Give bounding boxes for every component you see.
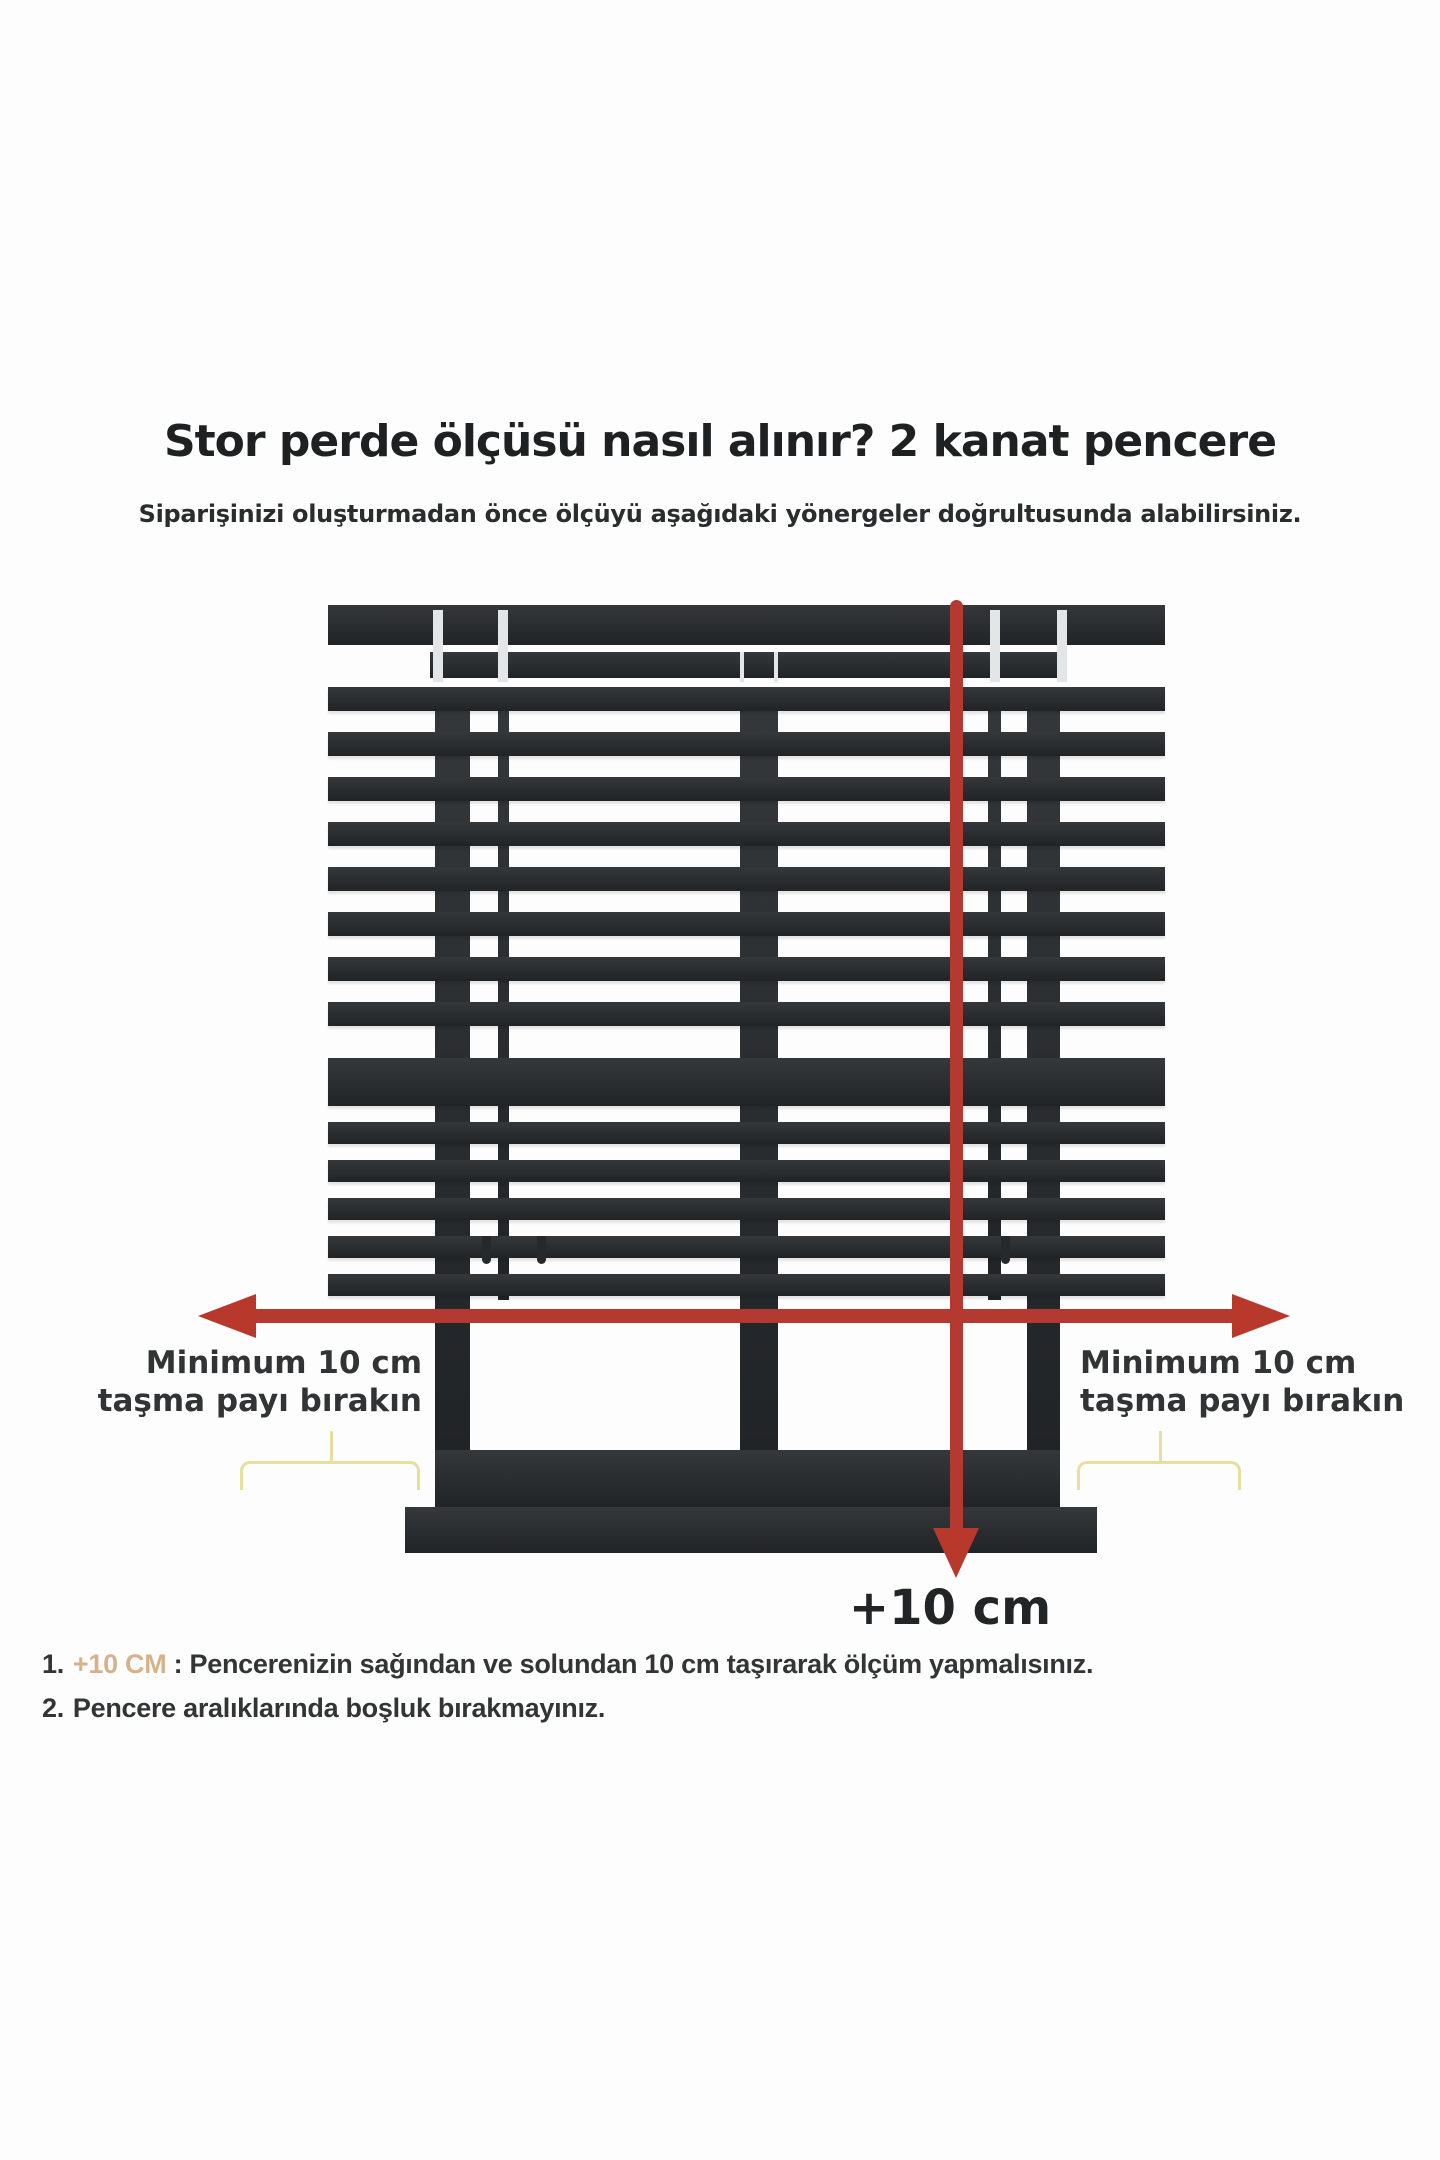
window-head-frame bbox=[430, 652, 1060, 678]
right-overhang-label: Minimum 10 cm taşma payı bırakın bbox=[1080, 1344, 1440, 1420]
frame-seam bbox=[774, 652, 778, 682]
blind-slat bbox=[328, 777, 1165, 801]
width-arrow-left-head-icon bbox=[198, 1294, 256, 1338]
instruction-2-number: 2. bbox=[42, 1693, 64, 1723]
frame-seam bbox=[433, 610, 443, 682]
left-overhang-line2: taşma payı bırakın bbox=[62, 1382, 422, 1420]
blind-cord-hook bbox=[482, 1236, 491, 1264]
blind-slat bbox=[328, 1160, 1165, 1182]
width-arrow-shaft bbox=[250, 1309, 1238, 1323]
page-subtitle: Siparişinizi oluşturmadan önce ölçüyü aş… bbox=[0, 500, 1440, 528]
right-overhang-line1: Minimum 10 cm bbox=[1080, 1344, 1440, 1382]
blind-slat bbox=[328, 687, 1165, 711]
blind-slat bbox=[328, 1274, 1165, 1296]
instruction-list: 1.+10 CM : Pencerenizin sağından ve solu… bbox=[42, 1642, 1422, 1730]
infographic-page: Stor perde ölçüsü nasıl alınır? 2 kanat … bbox=[0, 0, 1440, 2160]
window-sill bbox=[405, 1507, 1097, 1553]
instruction-2-text: Pencere aralıklarında boşluk bırakmayını… bbox=[73, 1693, 605, 1723]
height-measure-label: +10 cm bbox=[800, 1580, 1100, 1636]
instruction-1-text: : Pencerenizin sağından ve solundan 10 c… bbox=[166, 1649, 1093, 1679]
blind-slat bbox=[328, 1002, 1165, 1026]
frame-seam bbox=[990, 610, 1000, 682]
blind-slat bbox=[328, 1236, 1165, 1258]
blind-cord-hook bbox=[1001, 1236, 1010, 1264]
right-overhang-brace-icon bbox=[1077, 1461, 1241, 1490]
window-bottom-frame bbox=[435, 1450, 1060, 1507]
blind-slat-double bbox=[328, 1058, 1165, 1106]
right-overhang-line2: taşma payı bırakın bbox=[1080, 1382, 1440, 1420]
height-arrow-shaft bbox=[950, 600, 963, 1535]
left-overhang-line1: Minimum 10 cm bbox=[62, 1344, 422, 1382]
left-overhang-label: Minimum 10 cm taşma payı bırakın bbox=[62, 1344, 422, 1420]
width-arrow-right-head-icon bbox=[1232, 1294, 1290, 1338]
page-title: Stor perde ölçüsü nasıl alınır? 2 kanat … bbox=[0, 416, 1440, 467]
blind-valance bbox=[328, 605, 1165, 645]
frame-seam bbox=[1057, 610, 1067, 682]
blind-slat bbox=[328, 912, 1165, 936]
frame-seam bbox=[740, 652, 744, 682]
blind-slat bbox=[328, 1122, 1165, 1144]
blind-slat bbox=[328, 1198, 1165, 1220]
blind-cord-hook bbox=[537, 1236, 546, 1264]
instruction-1-number: 1. bbox=[42, 1649, 64, 1679]
blind-slat bbox=[328, 957, 1165, 981]
blind-slat bbox=[328, 732, 1165, 756]
blind-slat bbox=[328, 867, 1165, 891]
height-arrow-down-head-icon bbox=[933, 1528, 979, 1578]
frame-seam bbox=[498, 610, 508, 682]
instruction-1-highlight: +10 CM bbox=[73, 1649, 167, 1679]
blind-slat bbox=[328, 822, 1165, 846]
left-overhang-brace-icon bbox=[240, 1461, 420, 1490]
instruction-item-1: 1.+10 CM : Pencerenizin sağından ve solu… bbox=[42, 1642, 1422, 1686]
instruction-item-2: 2.Pencere aralıklarında boşluk bırakmayı… bbox=[42, 1686, 1422, 1730]
